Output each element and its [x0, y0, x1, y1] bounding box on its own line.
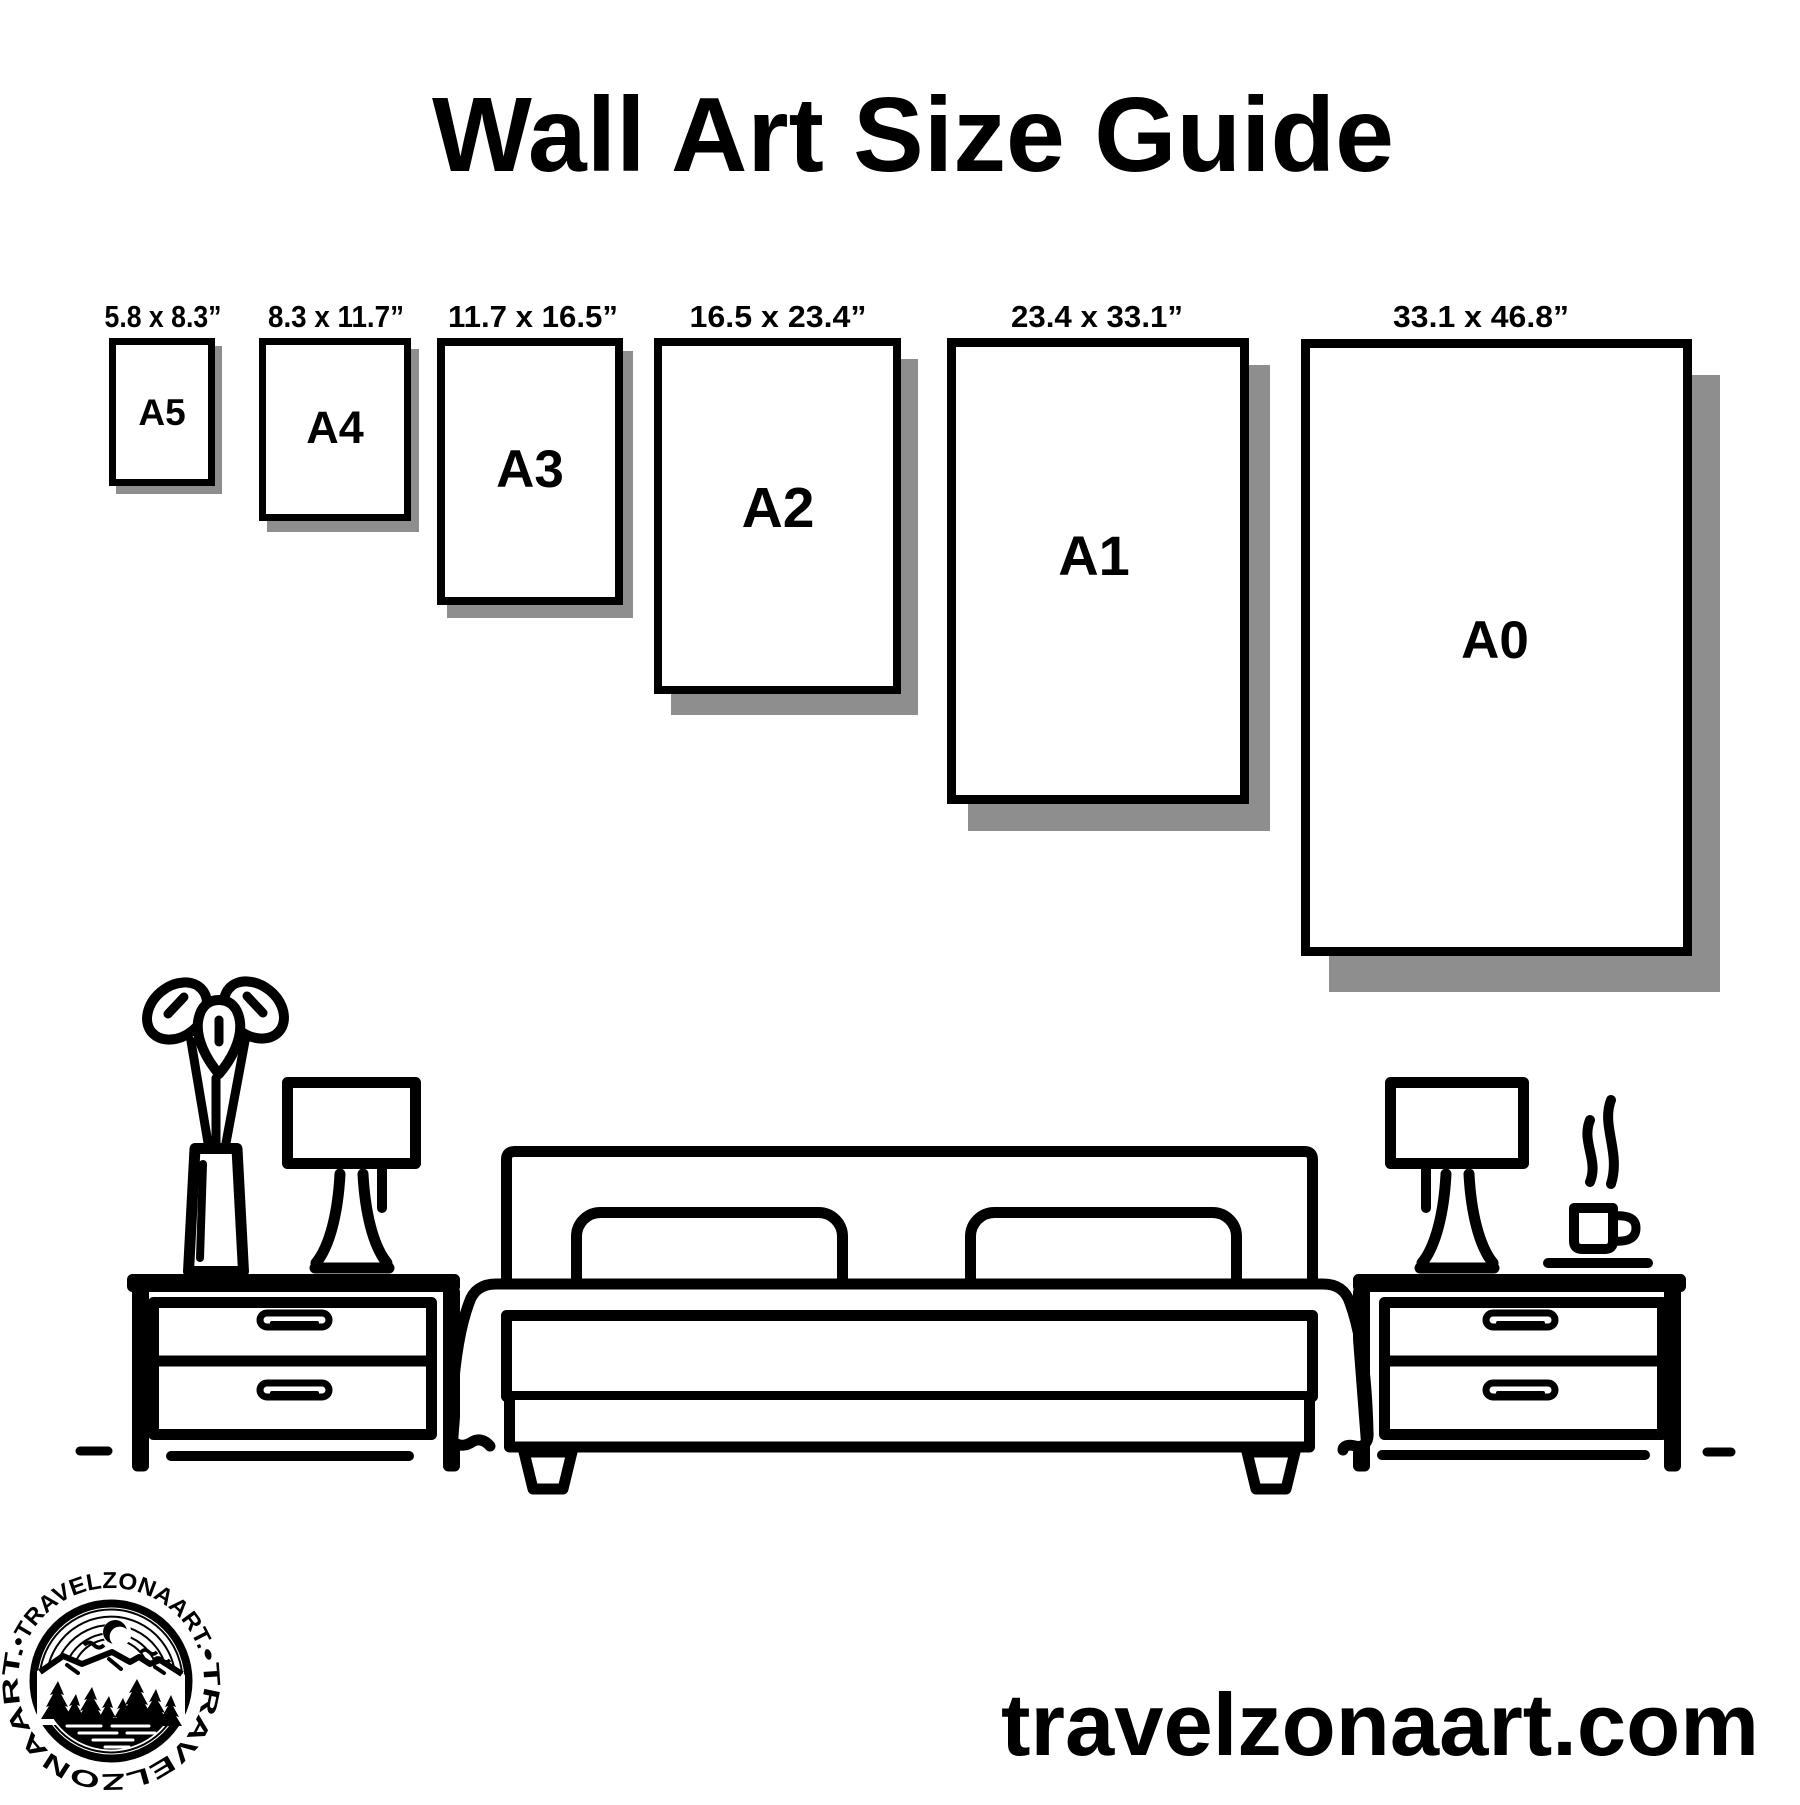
svg-text:A2: A2 [742, 476, 815, 540]
svg-text:5.8 x 8.3”: 5.8 x 8.3” [105, 299, 222, 334]
svg-text:A5: A5 [138, 392, 185, 433]
svg-text:33.1 x 46.8”: 33.1 x 46.8” [1393, 299, 1569, 334]
svg-text:16.5 x 23.4”: 16.5 x 23.4” [690, 299, 867, 334]
svg-text:travelzonaart.com: travelzonaart.com [1001, 1675, 1759, 1774]
svg-text:23.4 x 33.1”: 23.4 x 33.1” [1011, 299, 1183, 334]
svg-text:Wall Art Size Guide: Wall Art Size Guide [432, 76, 1394, 194]
svg-text:11.7 x 16.5”: 11.7 x 16.5” [448, 299, 618, 334]
svg-text:A1: A1 [1058, 524, 1130, 587]
svg-text:A0: A0 [1461, 611, 1529, 670]
svg-text:8.3 x 11.7”: 8.3 x 11.7” [268, 299, 404, 334]
svg-text:A4: A4 [306, 402, 364, 453]
svg-text:A3: A3 [496, 440, 564, 499]
